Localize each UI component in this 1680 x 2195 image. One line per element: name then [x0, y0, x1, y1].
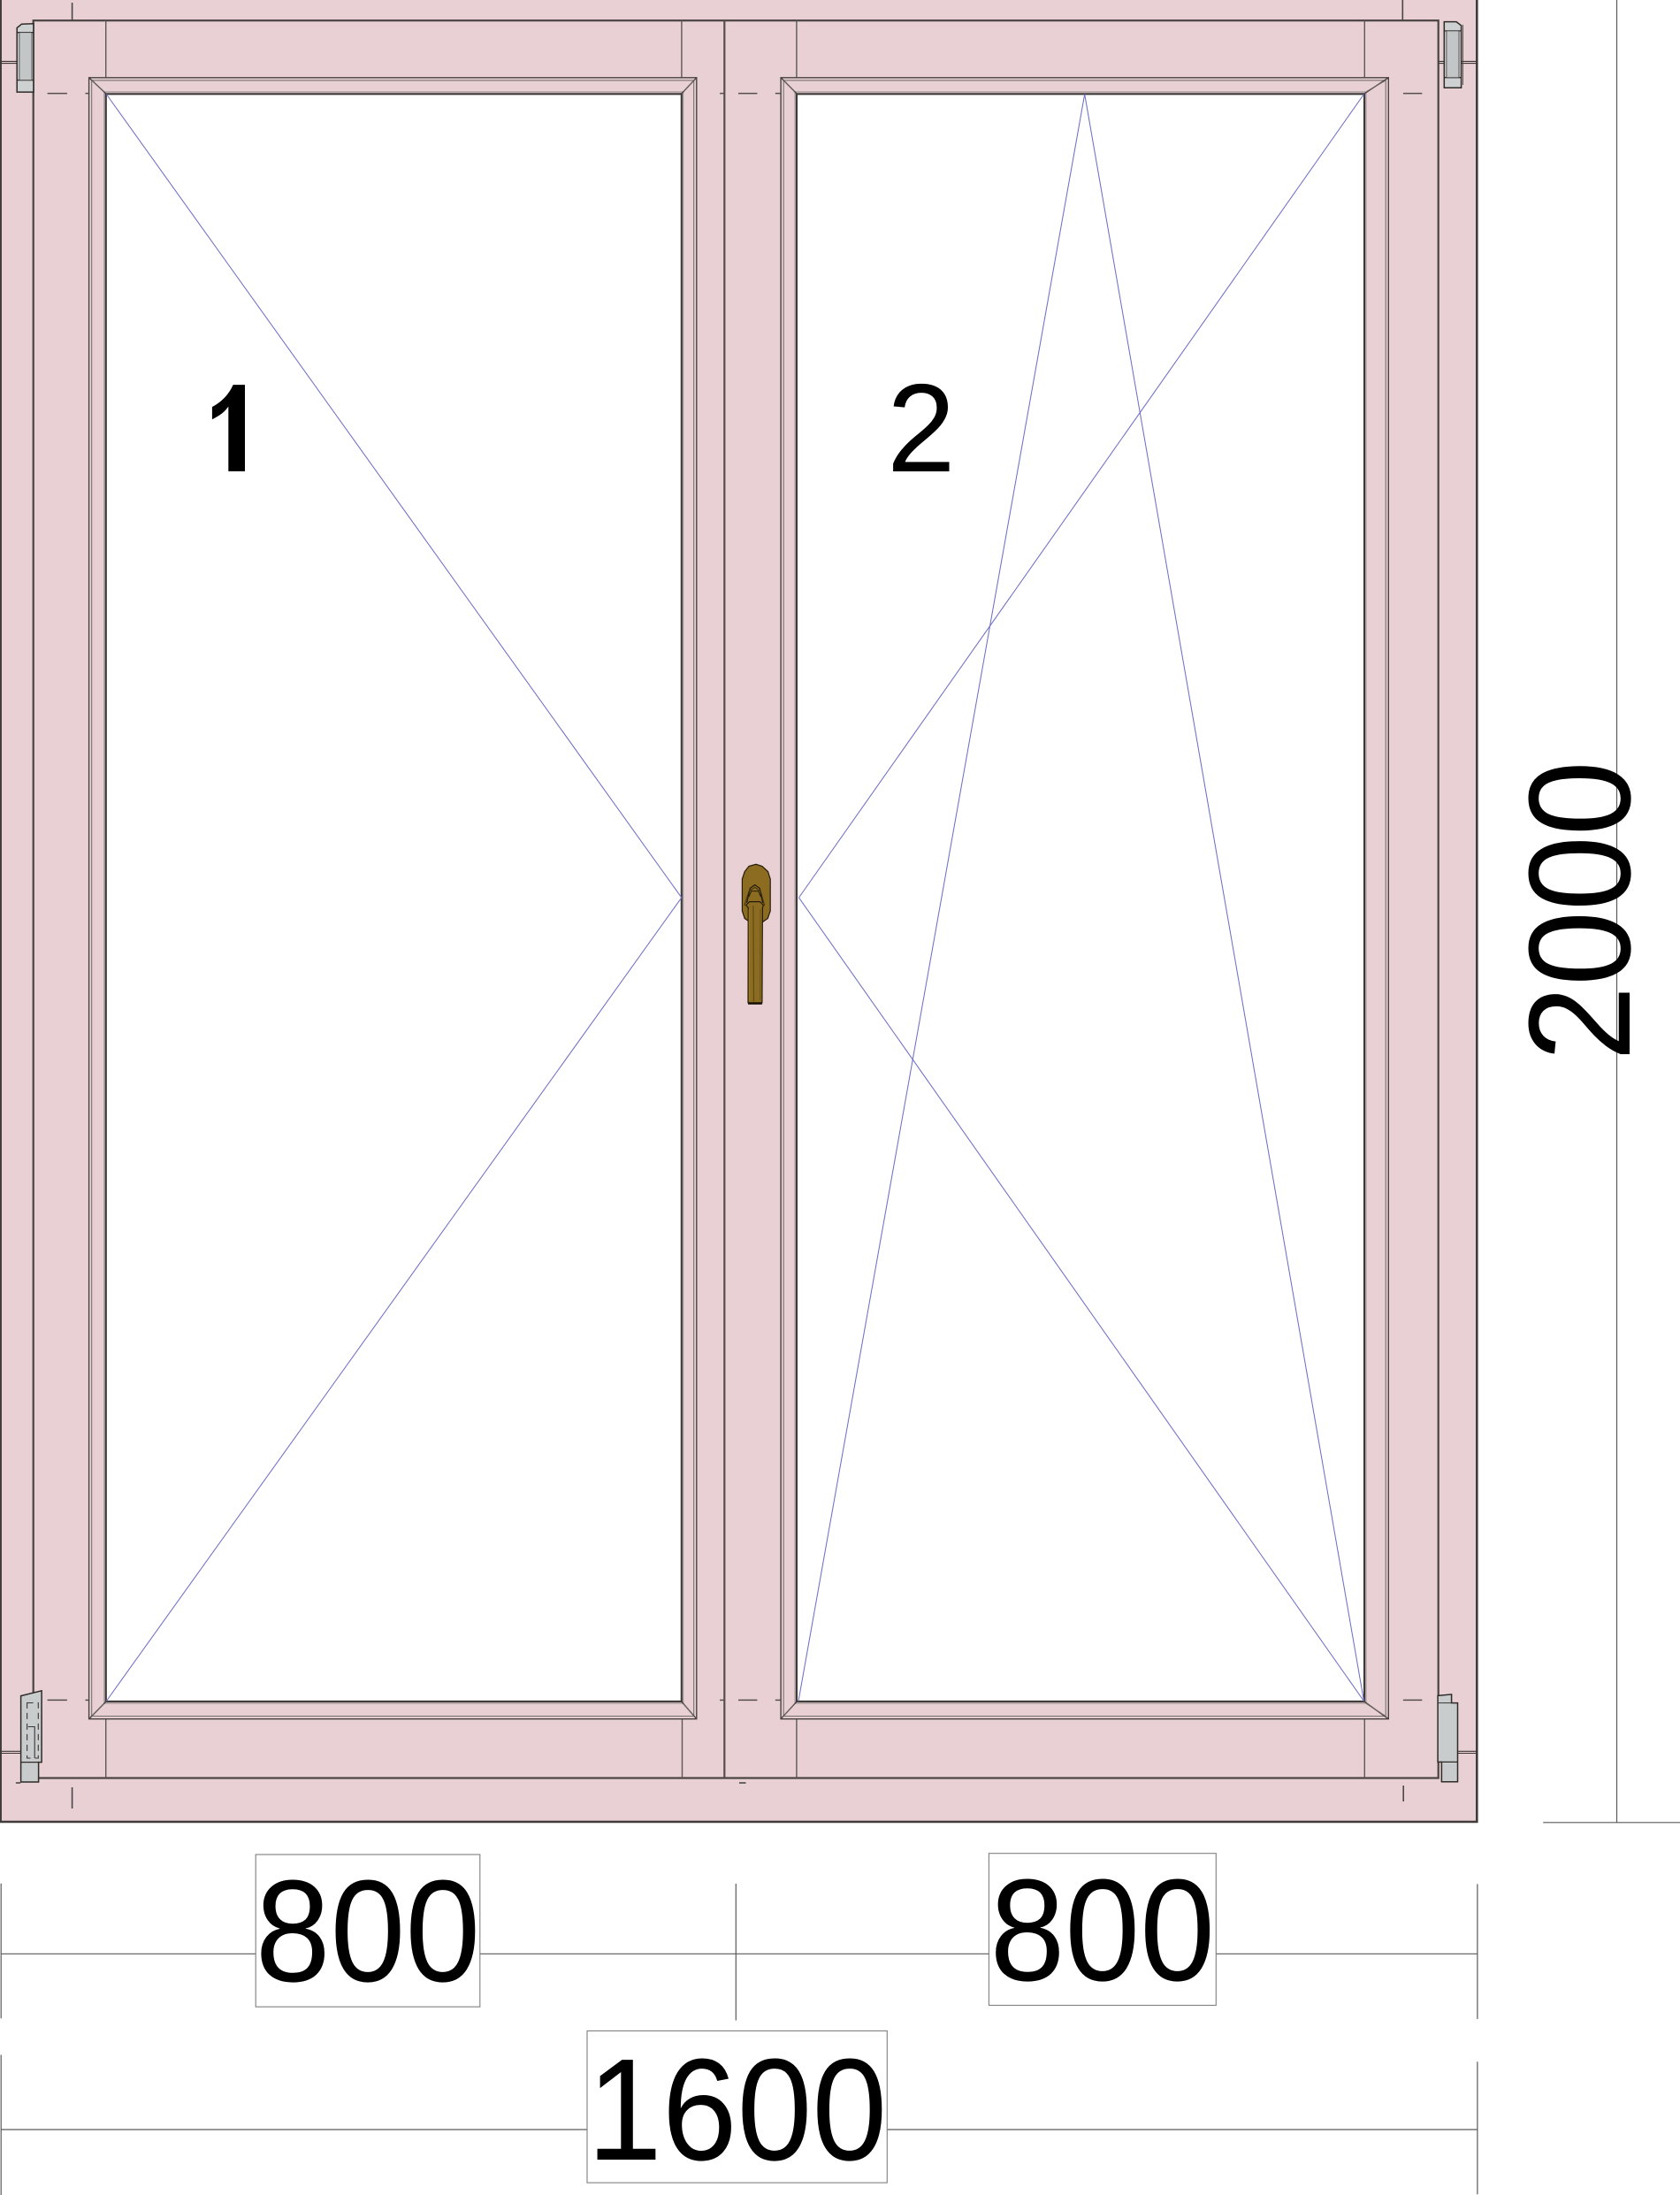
svg-text:800: 800	[990, 1849, 1215, 2011]
svg-text:800: 800	[256, 1850, 480, 2012]
svg-text:1600: 1600	[587, 2029, 887, 2191]
svg-text:2000: 2000	[1499, 761, 1661, 1060]
svg-text:2: 2	[887, 358, 955, 499]
